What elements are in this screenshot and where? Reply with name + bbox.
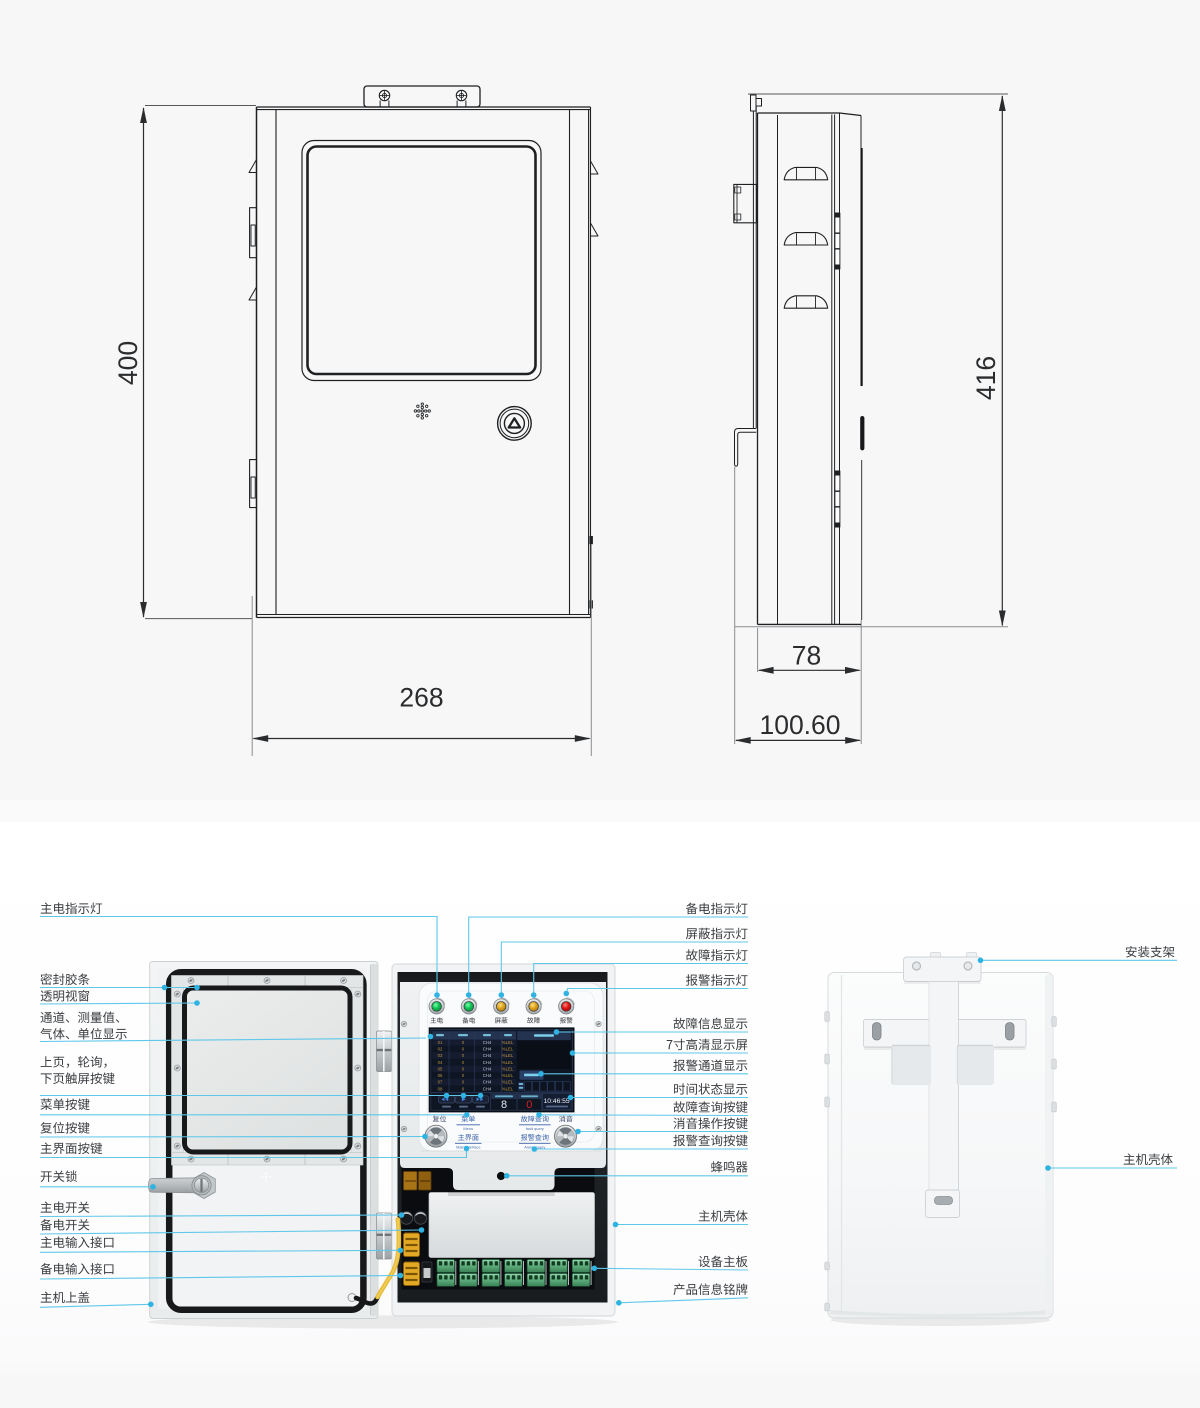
svg-text:CH4: CH4	[483, 1060, 492, 1065]
svg-text:05: 05	[438, 1066, 443, 1071]
svg-text:04: 04	[438, 1060, 443, 1065]
svg-text:8: 8	[501, 1099, 507, 1111]
svg-text:CH4: CH4	[483, 1040, 492, 1045]
svg-text:%LEL: %LEL	[502, 1053, 514, 1058]
svg-text:%LEL: %LEL	[502, 1066, 514, 1071]
svg-text:03: 03	[438, 1053, 443, 1058]
svg-text:CH4: CH4	[483, 1053, 492, 1058]
svg-text:02: 02	[438, 1047, 443, 1052]
svg-text:CH4: CH4	[483, 1073, 492, 1078]
svg-text:100.60: 100.60	[759, 710, 840, 740]
svg-text:CH4: CH4	[483, 1080, 492, 1085]
svg-text:416: 416	[971, 356, 1001, 400]
svg-text:06: 06	[438, 1073, 443, 1078]
svg-text:0: 0	[526, 1099, 532, 1111]
svg-text:08: 08	[438, 1086, 443, 1091]
svg-text:01: 01	[438, 1040, 443, 1045]
svg-text:%LEL: %LEL	[502, 1047, 514, 1052]
svg-text:%LEL: %LEL	[502, 1040, 514, 1045]
svg-text:10:46:55: 10:46:55	[544, 1098, 570, 1105]
svg-text:Menu: Menu	[463, 1126, 473, 1131]
svg-text:07: 07	[438, 1080, 443, 1085]
svg-text:CH4: CH4	[483, 1086, 492, 1091]
svg-text:CH4: CH4	[483, 1066, 492, 1071]
svg-text:%LEL: %LEL	[502, 1086, 514, 1091]
svg-text:78: 78	[792, 641, 821, 671]
svg-text:268: 268	[399, 683, 443, 713]
svg-text:fault query: fault query	[526, 1126, 544, 1131]
svg-text:%LEL: %LEL	[502, 1060, 514, 1065]
svg-text:CH4: CH4	[483, 1047, 492, 1052]
svg-text:%LEL: %LEL	[502, 1073, 514, 1078]
svg-text:%LEL: %LEL	[502, 1080, 514, 1085]
svg-text:400: 400	[113, 341, 143, 385]
